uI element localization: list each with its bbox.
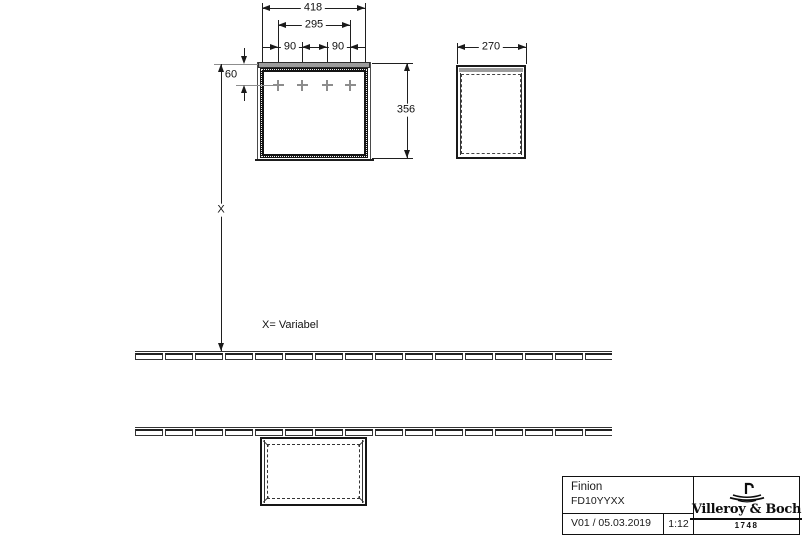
arrow-right-icon bbox=[342, 22, 350, 28]
floor-plank bbox=[165, 353, 193, 360]
floor-plank bbox=[495, 429, 523, 436]
floor-plank bbox=[555, 353, 583, 360]
floor-plank bbox=[435, 429, 463, 436]
floor-plank bbox=[435, 353, 463, 360]
panel-edge-line bbox=[521, 73, 522, 155]
title-block: Finion FD10YYXX V01 / 05.03.2019 1:12 Vi… bbox=[562, 476, 800, 535]
floor-plank bbox=[525, 353, 553, 360]
product-name: Finion bbox=[571, 481, 602, 493]
floor-plank bbox=[285, 429, 313, 436]
arrow-up-icon bbox=[218, 64, 224, 72]
dim-label-90-right: 90 bbox=[329, 41, 347, 54]
floor-plank bbox=[195, 353, 223, 360]
arrow-up-icon bbox=[404, 63, 410, 71]
hidden-edge-dashed bbox=[267, 444, 360, 499]
dim-label-90-left: 90 bbox=[281, 41, 299, 54]
dim-label-418: 418 bbox=[301, 2, 325, 15]
arrow-left-icon bbox=[302, 44, 310, 50]
dim-label-x: X bbox=[214, 204, 227, 217]
arrow-left-icon bbox=[350, 44, 358, 50]
floor-plank bbox=[525, 429, 553, 436]
dim-tail bbox=[244, 93, 245, 101]
arrow-left-icon bbox=[278, 22, 286, 28]
plan-view bbox=[260, 437, 367, 506]
arrow-right-icon bbox=[518, 44, 526, 50]
extension-line bbox=[526, 43, 527, 64]
floor-plank bbox=[405, 429, 433, 436]
floor-plank bbox=[345, 353, 373, 360]
dim-label-60: 60 bbox=[222, 69, 240, 82]
floor-plank bbox=[165, 429, 193, 436]
floor-plank bbox=[255, 353, 283, 360]
drill-hole-cross-icon bbox=[322, 80, 333, 91]
panel-edge-line bbox=[460, 73, 461, 155]
floor-planks bbox=[135, 353, 612, 360]
floor-plank bbox=[225, 353, 253, 360]
brand-founding-year: 1748 bbox=[735, 521, 759, 530]
arrow-down-icon bbox=[241, 56, 247, 64]
drill-hole-cross-icon bbox=[297, 80, 308, 91]
brand-logo: Villeroy & Boch 1748 bbox=[694, 477, 799, 534]
arrow-right-icon bbox=[319, 44, 327, 50]
floor-line-lower bbox=[135, 427, 612, 437]
extension-line bbox=[365, 3, 366, 62]
floor-plank bbox=[585, 429, 612, 436]
panel-edge-line bbox=[264, 440, 265, 503]
floor-plank bbox=[405, 353, 433, 360]
arrow-down-icon bbox=[218, 343, 224, 351]
dim-label-356: 356 bbox=[394, 104, 418, 117]
variable-note: X= Variabel bbox=[262, 319, 318, 331]
floor-plank bbox=[555, 429, 583, 436]
floor-plank bbox=[375, 429, 403, 436]
panel-edge-line bbox=[362, 440, 363, 503]
corner-tick bbox=[358, 440, 364, 446]
extension-line bbox=[372, 158, 413, 159]
hidden-edge-dashed bbox=[461, 74, 521, 154]
floor-plank bbox=[315, 353, 343, 360]
side-view bbox=[456, 65, 526, 159]
arrow-right-icon bbox=[270, 44, 278, 50]
floor-line-upper bbox=[135, 351, 612, 361]
arrow-left-icon bbox=[262, 5, 270, 11]
fountain-tower-icon bbox=[725, 481, 769, 503]
floor-plank bbox=[315, 429, 343, 436]
brand-wordmark: Villeroy & Boch bbox=[690, 503, 802, 520]
floor-planks bbox=[135, 429, 612, 436]
arrow-down-icon bbox=[404, 150, 410, 158]
version-date: V01 / 05.03.2019 bbox=[571, 517, 651, 529]
floor-plank bbox=[255, 429, 283, 436]
floor-plank bbox=[585, 353, 612, 360]
arrow-right-icon bbox=[357, 5, 365, 11]
cabinet-base-line bbox=[255, 159, 374, 161]
arrow-up-icon bbox=[241, 85, 247, 93]
floor-plank bbox=[465, 429, 493, 436]
corner-tick bbox=[358, 496, 364, 502]
article-number: FD10YYXX bbox=[571, 495, 625, 507]
arrow-left-icon bbox=[457, 44, 465, 50]
drill-hole-cross-icon bbox=[345, 80, 356, 91]
floor-plank bbox=[135, 429, 163, 436]
floor-plank bbox=[195, 429, 223, 436]
cabinet-top-panel bbox=[459, 68, 523, 72]
floor-plank bbox=[495, 353, 523, 360]
floor-plank bbox=[225, 429, 253, 436]
extension-line bbox=[457, 43, 458, 64]
floor-plank bbox=[375, 353, 403, 360]
floor-plank bbox=[465, 353, 493, 360]
floor-plank bbox=[345, 429, 373, 436]
dim-label-270: 270 bbox=[479, 41, 503, 54]
floor-plank bbox=[285, 353, 313, 360]
dim-tail bbox=[244, 48, 245, 56]
dim-label-295: 295 bbox=[302, 19, 326, 32]
extension-line bbox=[262, 3, 263, 62]
technical-drawing-page: { "drawing": { "dimensions": { "total_wi… bbox=[0, 0, 802, 537]
floor-plank bbox=[135, 353, 163, 360]
